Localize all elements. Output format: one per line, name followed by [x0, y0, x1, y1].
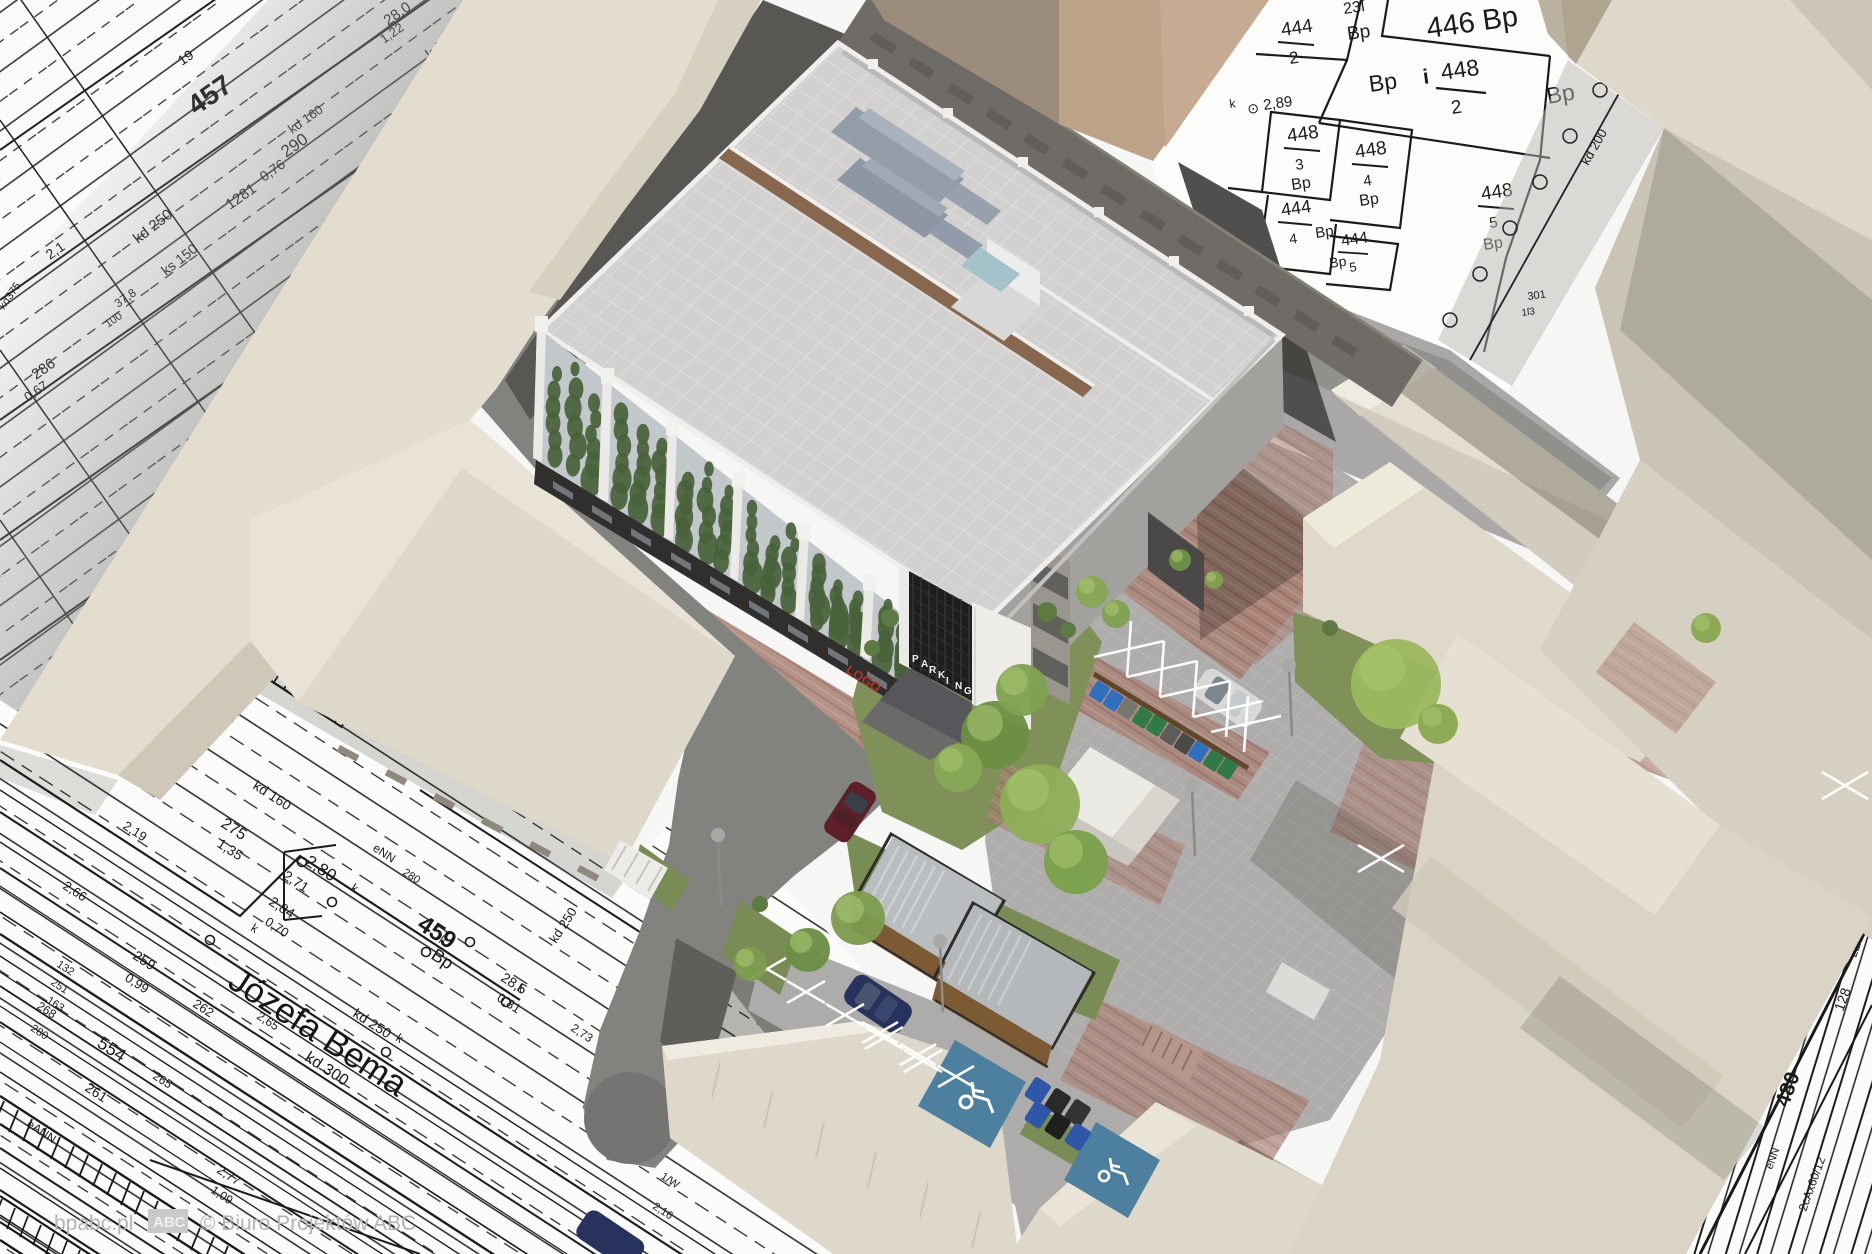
svg-text:448: 448	[1286, 122, 1320, 147]
svg-text:I: I	[946, 676, 949, 687]
svg-text:Bp: Bp	[1367, 67, 1398, 97]
svg-text:Bp: Bp	[1328, 253, 1347, 271]
svg-text:A: A	[921, 659, 928, 670]
svg-text:ABC: ABC	[153, 1214, 186, 1231]
svg-text:bpabc.pl: bpabc.pl	[54, 1212, 133, 1235]
svg-text:K: K	[938, 670, 946, 681]
svg-text:Bp: Bp	[1346, 21, 1372, 45]
svg-text:G: G	[964, 686, 972, 697]
svg-text:N: N	[955, 681, 962, 692]
svg-text:448: 448	[1439, 54, 1481, 85]
svg-text:© Biuro Projektów ABC: © Biuro Projektów ABC	[200, 1212, 416, 1235]
svg-text:301: 301	[1527, 289, 1547, 303]
svg-text:Bp: Bp	[1358, 190, 1380, 210]
svg-text:448: 448	[1354, 138, 1388, 163]
svg-text:444: 444	[1280, 196, 1313, 220]
svg-text:R: R	[929, 665, 937, 676]
svg-text:23ſ: 23ſ	[1342, 0, 1367, 18]
svg-text:Bp: Bp	[1314, 223, 1335, 242]
svg-text:Bp: Bp	[1290, 174, 1312, 194]
svg-text:P: P	[912, 654, 919, 665]
svg-text:444: 444	[1280, 16, 1315, 41]
svg-text:1ſ3: 1ſ3	[1521, 306, 1536, 319]
svg-text:⊙: ⊙	[1246, 99, 1260, 116]
